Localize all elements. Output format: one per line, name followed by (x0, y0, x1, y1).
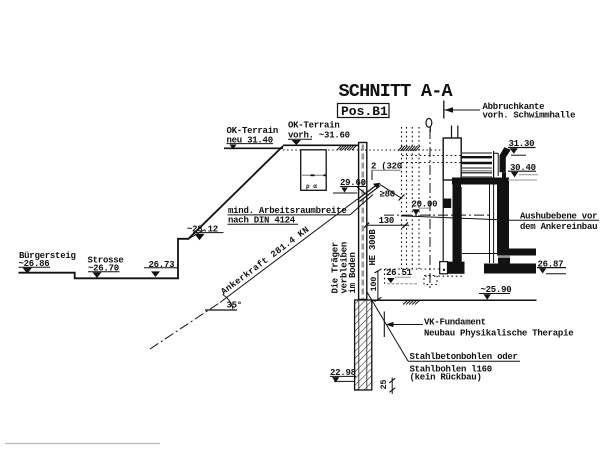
svg-text:(kein Rückbau): (kein Rückbau) (410, 373, 482, 383)
svg-text:mind. Arbeitsraumbreite: mind. Arbeitsraumbreite (228, 206, 346, 216)
svg-text:SCHNITT A-A: SCHNITT A-A (339, 81, 454, 102)
svg-text:HE 300B: HE 300B (368, 229, 378, 266)
svg-text:VK-Fundament: VK-Fundament (424, 317, 486, 327)
svg-text:OK-Terrain: OK-Terrain (288, 121, 340, 131)
svg-text:vorh. Schwimmhalle: vorh. Schwimmhalle (483, 111, 576, 121)
svg-text:im Boden: im Boden (348, 252, 358, 293)
svg-text:25: 25 (379, 380, 389, 390)
svg-text:≥80: ≥80 (380, 190, 395, 200)
svg-text:dem Ankereinbau: dem Ankereinbau (520, 222, 597, 232)
svg-text:100: 100 (369, 277, 379, 292)
svg-text:26.51: 26.51 (386, 268, 413, 278)
svg-text:Pos.B1: Pos.B1 (341, 104, 388, 119)
svg-text:130: 130 (379, 216, 394, 226)
svg-text:ρ α: ρ α (306, 183, 317, 190)
svg-text:35°: 35° (227, 300, 242, 310)
svg-text:Stahlbetonbohlen oder: Stahlbetonbohlen oder (410, 352, 518, 362)
svg-text:Neubau Physikalische Therapie: Neubau Physikalische Therapie (424, 328, 573, 338)
